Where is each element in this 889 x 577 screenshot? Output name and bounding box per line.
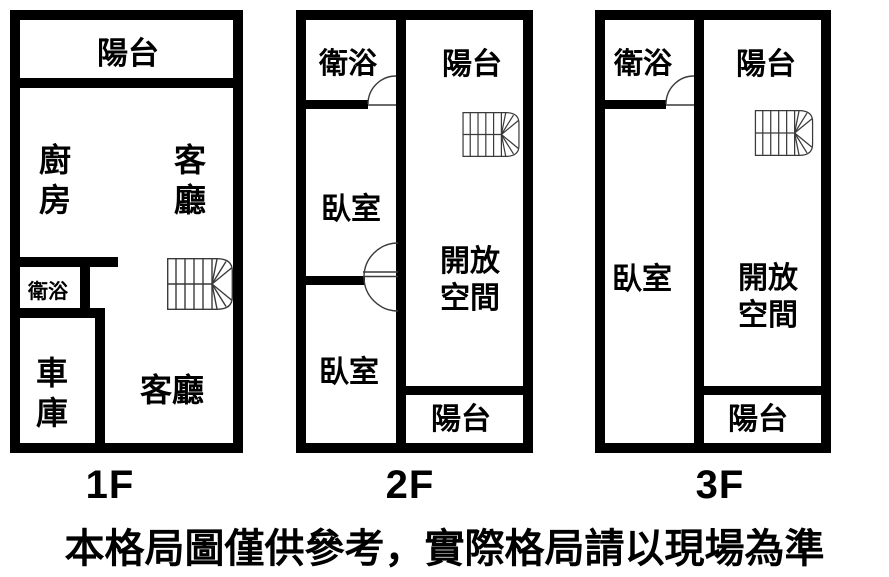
- 1f-stairs-icon: [167, 258, 233, 310]
- 3f-bathroom-label: 衛浴: [601, 46, 685, 82]
- 1f-kitchen-label: 廚房: [37, 140, 73, 220]
- 1f-balcony-wall: [10, 78, 243, 88]
- 1f-caption: 1F: [68, 463, 152, 508]
- 2f-bedroom-upper-label: 臥室: [305, 191, 397, 229]
- 1f-kitchen-wall: [10, 257, 118, 267]
- 2f-open-space-label: 開放空間: [436, 243, 504, 317]
- 3f-open-space-label: 開放空間: [734, 260, 802, 334]
- 3f-balcony-bottom-wall: [704, 386, 831, 395]
- 1f-balcony-label: 陽台: [86, 35, 170, 74]
- 2f-bedroom-divider-wall: [296, 276, 365, 285]
- 2f-bathroom-label: 衛浴: [306, 46, 390, 82]
- 3f-balcony-top-label: 陽台: [724, 46, 808, 84]
- 2f-bedroom-lower-label: 臥室: [303, 354, 395, 392]
- disclaimer-text: 本格局圖僅供參考，實際格局請以現場為準: [0, 516, 889, 574]
- 3f-caption: 3F: [678, 463, 762, 508]
- 2f-balcony-bottom-wall: [406, 386, 533, 395]
- 1f-bathroom-label: 衛浴: [21, 280, 75, 305]
- 3f-bedroom-label: 臥室: [596, 261, 688, 299]
- 1f-garage-divider-wall: [95, 308, 105, 453]
- 1f-living-upper-label: 客廳: [172, 140, 208, 220]
- 3f-bath-bottom-wall: [595, 100, 666, 109]
- 2f-balcony-top-label: 陽台: [430, 46, 514, 84]
- 2f-bedroom-door-arc-icon: [358, 238, 403, 318]
- 3f-balcony-bottom-label: 陽台: [716, 401, 800, 439]
- 2f-balcony-bottom-label: 陽台: [419, 401, 503, 439]
- 1f-bath-bottom-wall: [10, 308, 105, 318]
- 2f-stairs-icon: [460, 112, 522, 157]
- floor-plan-image: 陽台 廚房 客廳 衛浴 車庫 客廳 1F 衛浴: [0, 0, 889, 577]
- 2f-caption: 2F: [368, 463, 452, 508]
- 3f-stairs-icon: [753, 110, 815, 156]
- 1f-garage-label: 車庫: [34, 353, 70, 433]
- 1f-living-lower-label: 客廳: [122, 370, 222, 410]
- 2f-bath-bottom-wall: [296, 100, 368, 109]
